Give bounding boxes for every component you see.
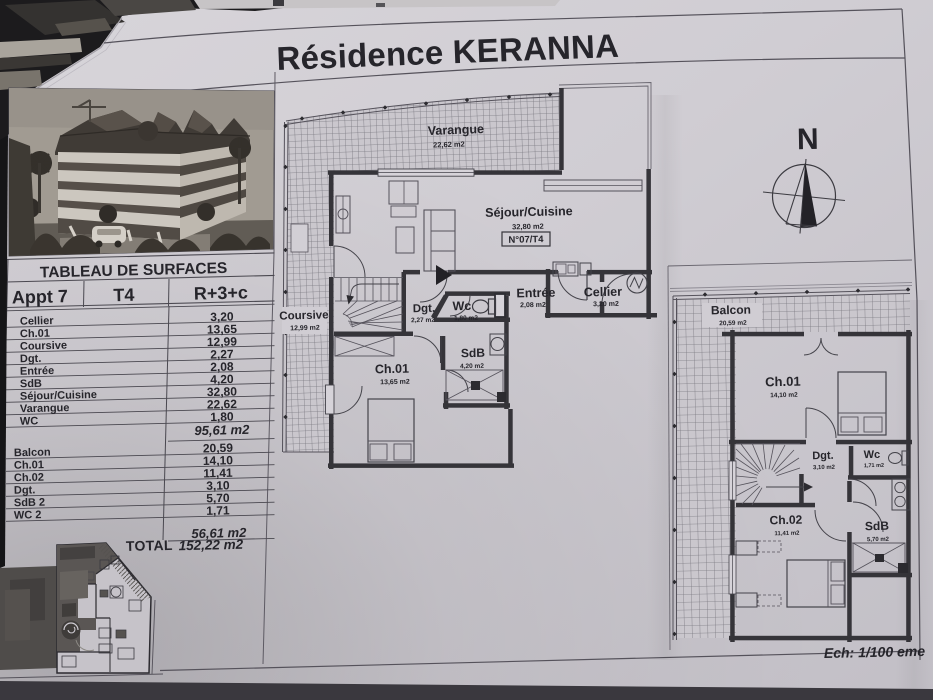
svg-text:Séjour/Cuisine: Séjour/Cuisine: [20, 389, 97, 403]
svg-text:T4: T4: [113, 285, 134, 306]
svg-text:SdB: SdB: [20, 378, 42, 391]
svg-text:Wc: Wc: [452, 299, 471, 313]
svg-text:11,41 m2: 11,41 m2: [774, 531, 800, 538]
svg-text:Dgt.: Dgt.: [14, 484, 36, 497]
svg-text:20,59 m2: 20,59 m2: [719, 320, 747, 328]
svg-text:12,99 m2: 12,99 m2: [290, 325, 320, 333]
svg-text:3,20 m2: 3,20 m2: [593, 301, 619, 309]
svg-text:R+3+c: R+3+c: [194, 282, 249, 303]
svg-text:95,61 m2: 95,61 m2: [194, 422, 250, 438]
svg-text:152,22 m2: 152,22 m2: [178, 537, 243, 554]
svg-text:Varangue: Varangue: [427, 122, 484, 138]
svg-text:N: N: [797, 123, 819, 156]
svg-text:N°07/T4: N°07/T4: [508, 234, 544, 246]
svg-text:Balcon: Balcon: [14, 446, 51, 459]
svg-text:Appt 7: Appt 7: [12, 286, 68, 307]
svg-text:Séjour/Cuisine: Séjour/Cuisine: [485, 204, 573, 220]
svg-text:Varangue: Varangue: [20, 402, 70, 415]
svg-text:Entrée: Entrée: [20, 365, 55, 378]
svg-text:5,70 m2: 5,70 m2: [867, 537, 890, 543]
svg-text:Entrée: Entrée: [516, 286, 555, 301]
svg-text:13,65 m2: 13,65 m2: [380, 379, 410, 387]
svg-text:SdB: SdB: [865, 519, 890, 534]
svg-text:Ch.02: Ch.02: [769, 513, 802, 528]
svg-text:32,80 m2: 32,80 m2: [512, 222, 544, 232]
svg-text:1,80 m2: 1,80 m2: [454, 315, 478, 323]
svg-text:Wc: Wc: [864, 449, 881, 461]
svg-text:Dgt.: Dgt.: [413, 303, 436, 315]
svg-text:2,27 m2: 2,27 m2: [411, 317, 435, 325]
svg-text:3,10 m2: 3,10 m2: [813, 465, 836, 471]
svg-text:4,20 m2: 4,20 m2: [460, 363, 484, 371]
svg-text:Coursive: Coursive: [20, 340, 67, 353]
svg-text:Balcon: Balcon: [711, 303, 751, 318]
svg-text:Dgt.: Dgt.: [812, 450, 834, 462]
svg-text:SdB: SdB: [461, 346, 486, 361]
svg-text:Coursive: Coursive: [279, 309, 328, 322]
svg-text:Cellier: Cellier: [584, 285, 623, 300]
svg-text:Ch.01: Ch.01: [14, 459, 44, 472]
svg-text:SdB 2: SdB 2: [14, 497, 45, 510]
svg-text:Cellier: Cellier: [20, 315, 55, 328]
svg-text:Ch.01: Ch.01: [765, 374, 801, 390]
svg-text:TOTAL: TOTAL: [126, 537, 173, 554]
svg-text:Ch.02: Ch.02: [14, 472, 44, 485]
svg-text:Dgt.: Dgt.: [20, 353, 42, 366]
svg-text:WC: WC: [20, 415, 39, 427]
svg-text:Ch.01: Ch.01: [375, 362, 409, 377]
svg-text:22,62 m2: 22,62 m2: [433, 139, 465, 149]
svg-text:1,71 m2: 1,71 m2: [864, 463, 884, 469]
svg-text:1,71: 1,71: [206, 503, 230, 518]
svg-text:14,10 m2: 14,10 m2: [770, 392, 798, 400]
svg-text:2,08 m2: 2,08 m2: [520, 302, 546, 310]
svg-text:WC 2: WC 2: [14, 509, 42, 522]
svg-text:Ch.01: Ch.01: [20, 328, 50, 341]
